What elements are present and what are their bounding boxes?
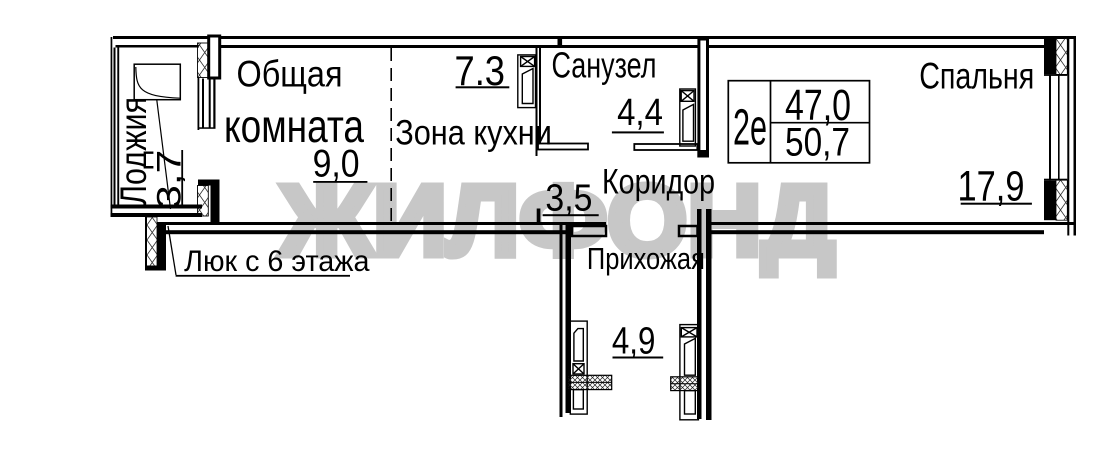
svg-text:9,0: 9,0 [313, 142, 360, 185]
svg-text:4,4: 4,4 [617, 92, 663, 134]
svg-text:50,7: 50,7 [785, 120, 850, 164]
svg-text:3,5: 3,5 [545, 178, 592, 220]
svg-text:2е: 2е [733, 99, 767, 156]
svg-text:Лоджия: Лоджия [113, 97, 154, 205]
svg-text:Люк с 6 этажа: Люк с 6 этажа [184, 245, 370, 278]
svg-text:Санузел: Санузел [552, 44, 657, 85]
svg-text:Общая: Общая [237, 54, 343, 95]
svg-text:4,9: 4,9 [612, 321, 656, 363]
svg-text:Зона кухни: Зона кухни [395, 113, 552, 152]
svg-text:Прихожая: Прихожая [587, 241, 705, 276]
svg-text:Коридор: Коридор [602, 162, 715, 201]
svg-text:Спальня: Спальня [919, 56, 1034, 97]
